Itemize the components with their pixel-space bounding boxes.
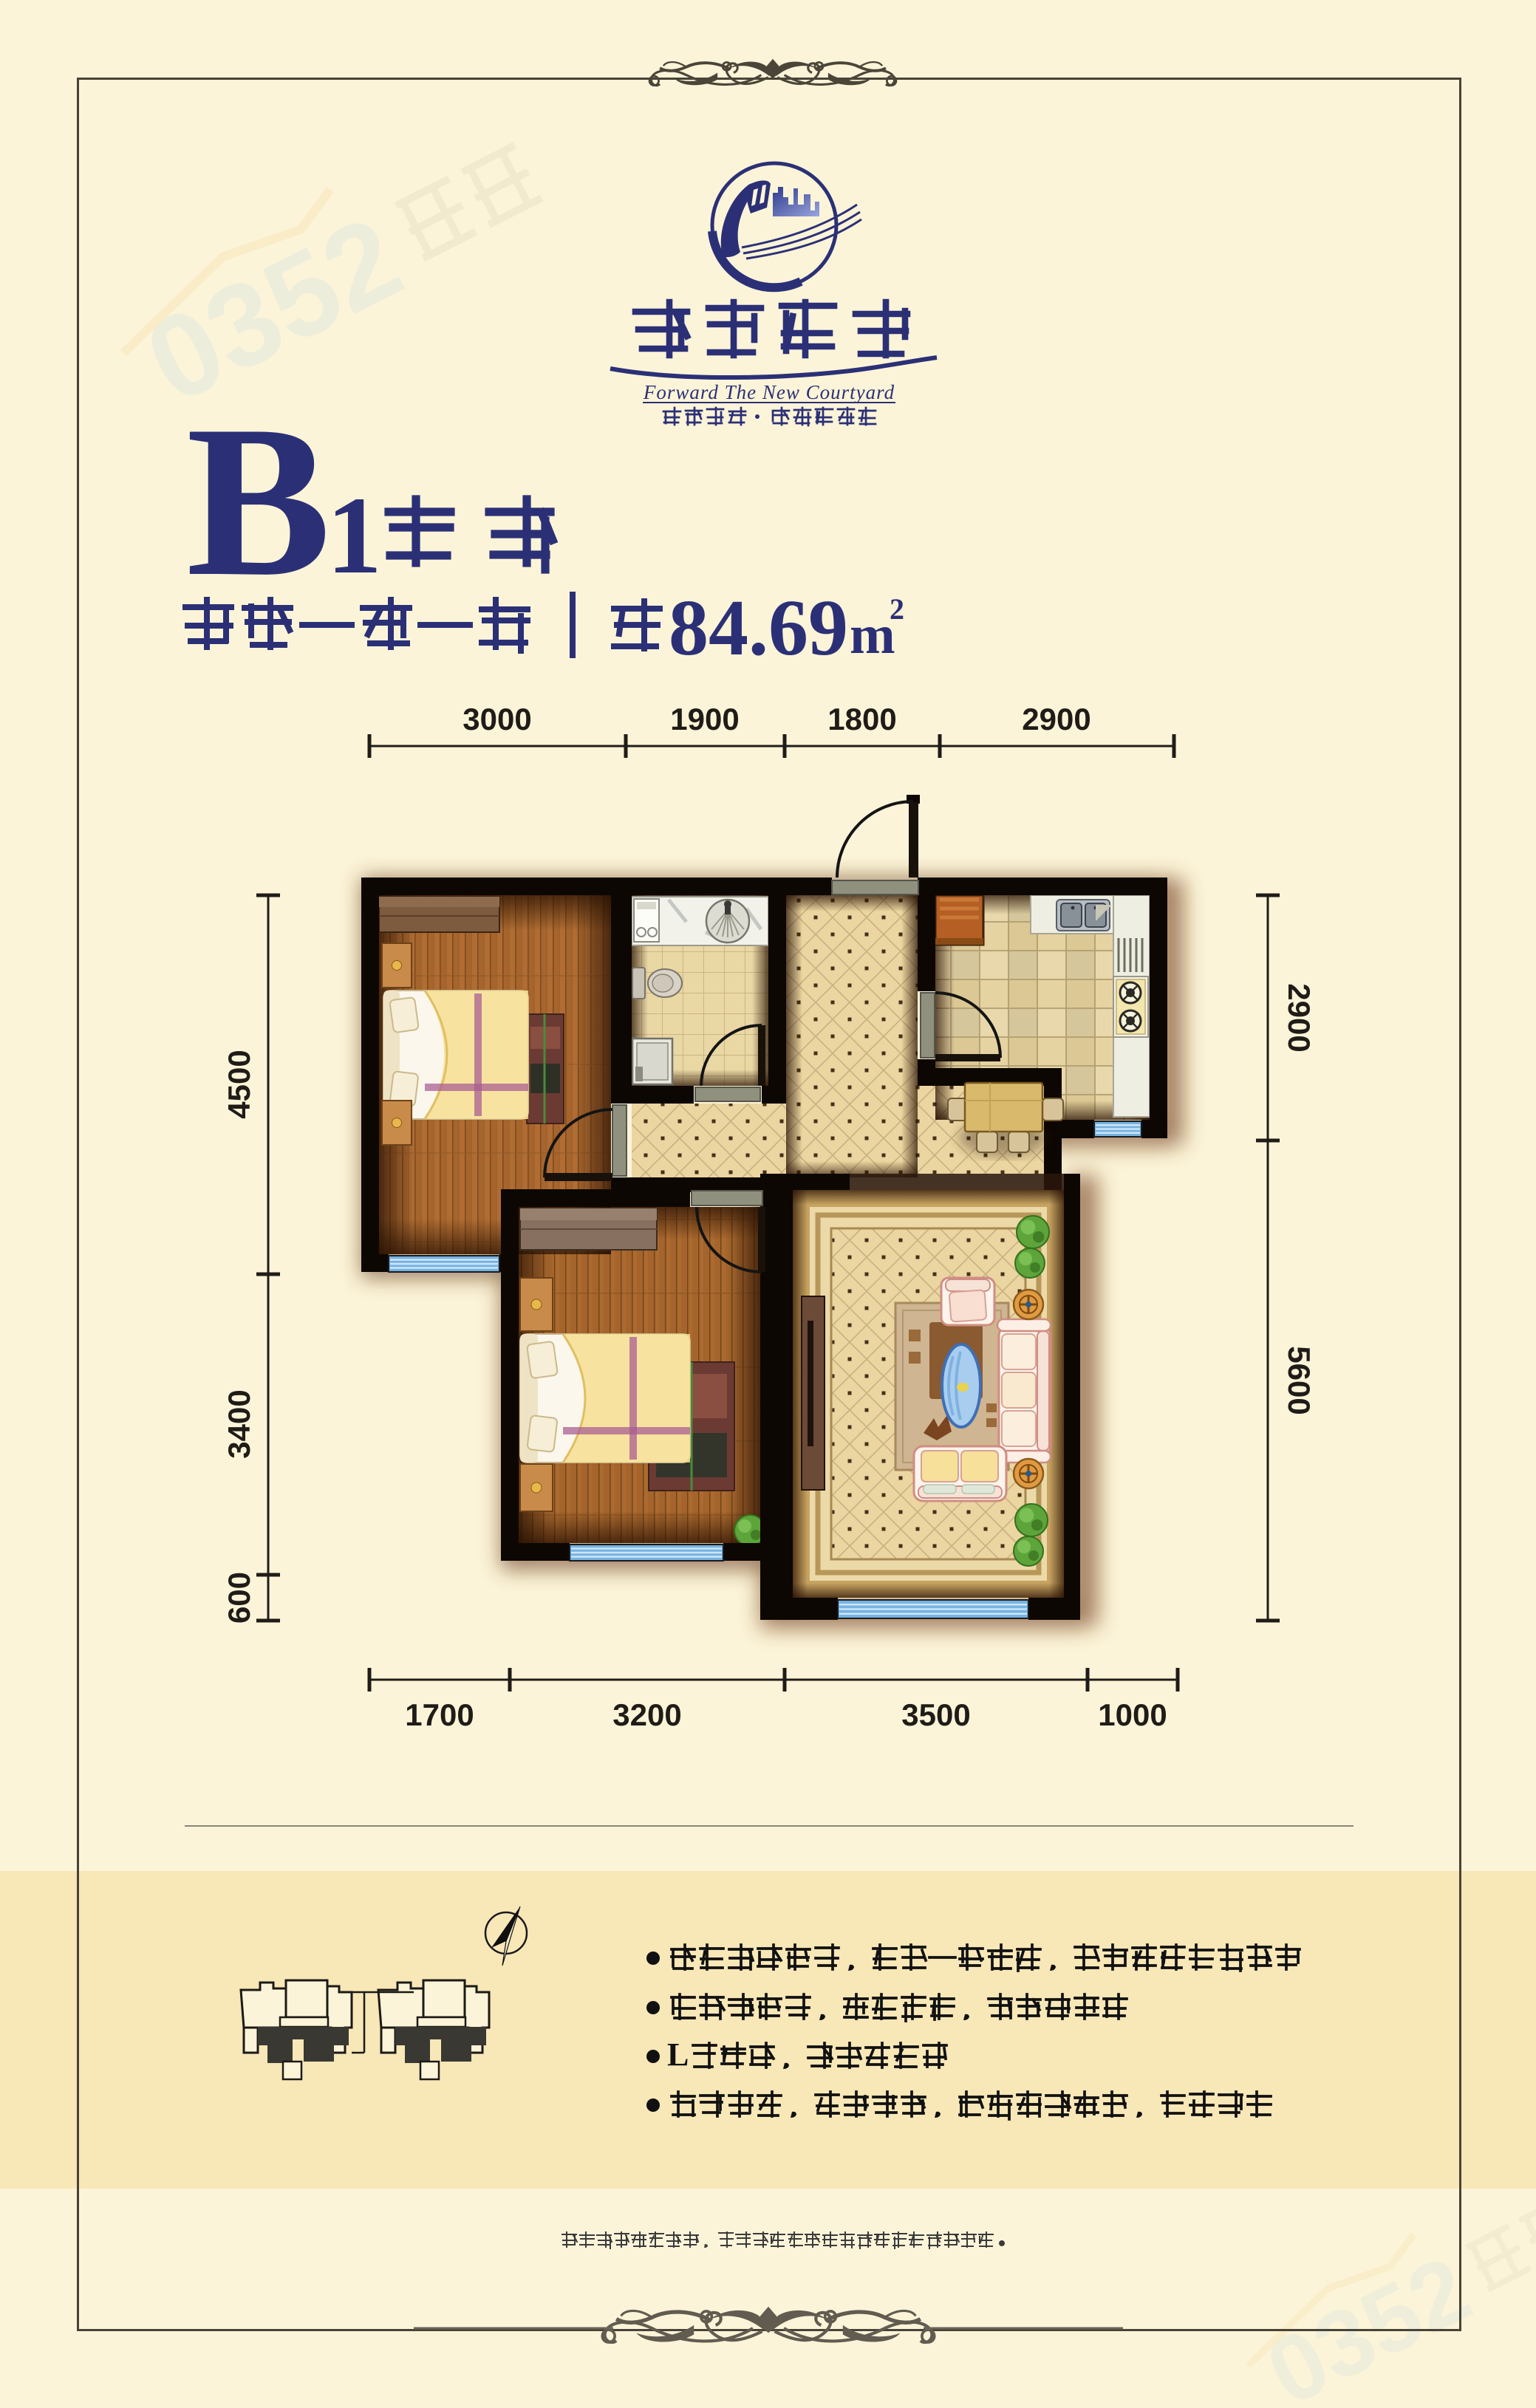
svg-text:1800: 1800 [827, 702, 896, 736]
svg-text:3500: 3500 [901, 1697, 970, 1732]
svg-text:m: m [850, 605, 895, 666]
svg-text:1900: 1900 [670, 702, 739, 736]
svg-text:84.69: 84.69 [669, 584, 848, 672]
svg-text:1700: 1700 [405, 1697, 474, 1732]
svg-text:2900: 2900 [1022, 702, 1090, 736]
svg-text:5600: 5600 [1282, 1346, 1317, 1415]
svg-text:Forward The New Courtyard: Forward The New Courtyard [643, 381, 895, 403]
svg-text:2900: 2900 [1282, 983, 1317, 1052]
svg-text:2: 2 [890, 592, 904, 626]
svg-text:3200: 3200 [612, 1697, 681, 1732]
svg-text:3400: 3400 [222, 1389, 256, 1458]
svg-text:4500: 4500 [222, 1050, 256, 1118]
svg-text:600: 600 [222, 1572, 256, 1624]
svg-text:3000: 3000 [462, 702, 531, 736]
svg-text:1000: 1000 [1098, 1697, 1167, 1732]
svg-text:B: B [186, 380, 331, 621]
svg-text:L: L [667, 2036, 689, 2073]
svg-text:1: 1 [327, 474, 382, 597]
